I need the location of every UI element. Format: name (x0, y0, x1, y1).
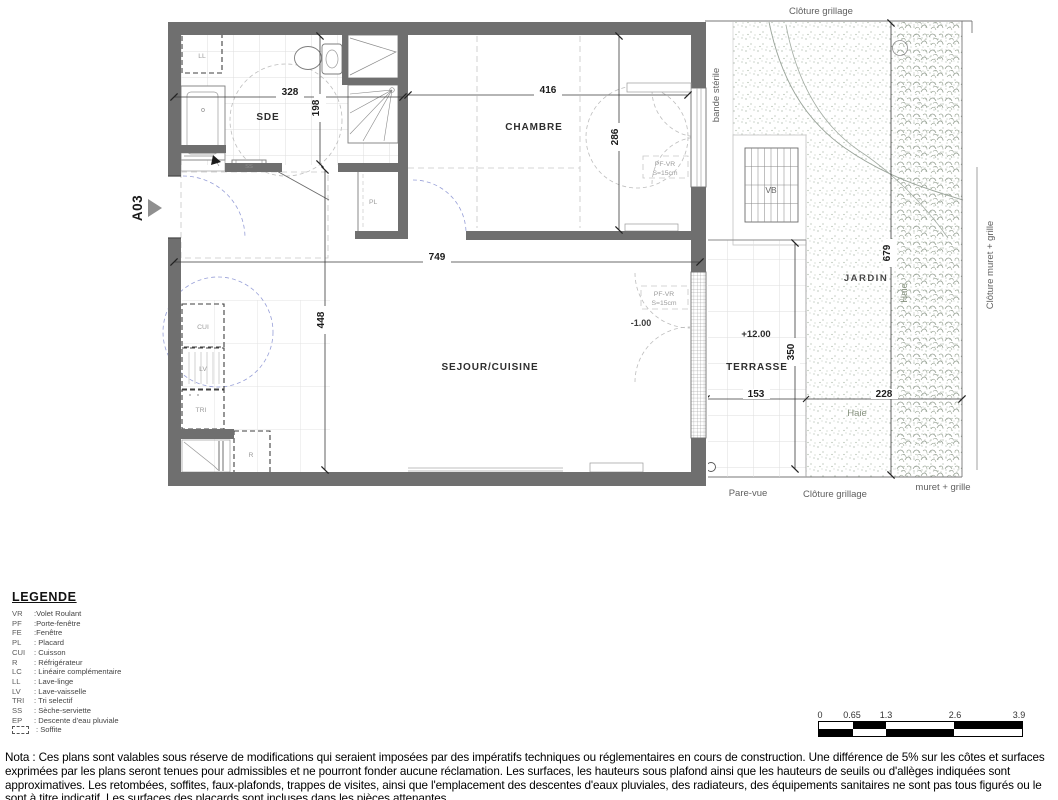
ss-label: SS (245, 164, 253, 170)
legend-item: FE:Fenêtre (12, 628, 121, 638)
soffite-dashed-icon (12, 726, 29, 734)
legend-item: R: Réfrigérateur (12, 658, 121, 668)
room-label-sde: SDE (256, 112, 279, 123)
legend-title: LEGENDE (12, 590, 121, 604)
terrasse-door (691, 272, 706, 438)
cloture-grillage-bottom-label: Clôture grillage (803, 489, 867, 500)
hedge-texture (895, 22, 962, 477)
floor-plan-drawing: VB TERRASSE +12.00 Clôture grillage band… (0, 0, 1058, 592)
legend-item: EP: Descente d'eau pluviale (12, 716, 121, 726)
room-label-terrasse: TERRASSE (726, 362, 788, 373)
legend-item: PL: Placard (12, 638, 121, 648)
cui-label: CUI (197, 324, 209, 331)
muret-grille-label: muret + grille (915, 482, 970, 493)
dim-328: 328 (282, 87, 299, 98)
unit-marker: A03 (130, 195, 162, 221)
svg-text:S=15cm: S=15cm (651, 300, 676, 307)
sejour-level: -1.00 (631, 318, 652, 328)
legend-rows: VR:Volet Roulant PF:Porte-fenêtre FE:Fen… (12, 609, 121, 735)
shower-door (348, 35, 398, 78)
nota-text: Nota : Ces plans sont valables sous rése… (5, 751, 1055, 800)
tri-label: TRI (196, 407, 207, 414)
haie-horizontal-label: Haie (847, 408, 867, 419)
cloture-grillage-top-label: Clôture grillage (789, 6, 853, 17)
vb-label: VB (765, 185, 777, 195)
dim-198: 198 (311, 99, 322, 116)
svg-text:S=15cm: S=15cm (652, 170, 677, 177)
legend-item: LV: Lave-vaisselle (12, 687, 121, 697)
legend-item: LC: Linéaire complémentaire (12, 667, 121, 677)
unit-label: A03 (130, 195, 145, 221)
legend-item: CUI: Cuisson (12, 648, 121, 658)
room-label-jardin: JARDIN (844, 273, 888, 284)
svg-text:PF-VR: PF-VR (655, 161, 675, 168)
bande-sterile-label: bande stérile (711, 68, 722, 122)
garden-area: VB TERRASSE +12.00 Clôture grillage band… (705, 6, 996, 500)
legend-item: VR:Volet Roulant (12, 609, 121, 619)
lv-label: LV (199, 366, 207, 373)
scale-bar: 0 0.65 1.3 2.6 3.9 (818, 710, 1023, 737)
dim-416: 416 (540, 85, 557, 96)
dim-228: 228 (876, 389, 893, 400)
dim-448: 448 (316, 311, 327, 328)
haie-vertical-label: Haie (899, 283, 910, 303)
scale-bar-graphic (818, 721, 1023, 737)
ll-label: LL (198, 53, 206, 60)
vb-grate: VB (733, 135, 806, 245)
dim-286: 286 (610, 128, 621, 145)
legend-item: SS: Sèche-serviette (12, 706, 121, 716)
svg-text:PF-VR: PF-VR (654, 291, 674, 298)
terrace-level: +12.00 (741, 329, 770, 340)
dim-679: 679 (882, 244, 893, 261)
apartment: PL 328 198 416 286 749 448 SDE CHAMBRE S… (163, 22, 708, 486)
legend-item: LL: Lave-linge (12, 677, 121, 687)
legend-item: PF:Porte-fenêtre (12, 619, 121, 629)
r-label: R (249, 452, 254, 459)
scale-bar-labels: 0 0.65 1.3 2.6 3.9 (818, 710, 1023, 721)
legend-item-soffite: : Soffite (12, 725, 121, 735)
roller-shutter-box (627, 83, 691, 92)
toilet (295, 47, 322, 70)
hand-basin (322, 44, 342, 74)
pare-vue-label: Pare-vue (729, 488, 768, 499)
pl-label: PL (369, 199, 378, 206)
dim-153: 153 (748, 389, 765, 400)
cloture-muret-label: Clôture muret + grille (985, 221, 996, 309)
legend-item: TRI: Tri selectif (12, 696, 121, 706)
dim-350: 350 (786, 343, 797, 360)
room-label-sejour: SEJOUR/CUISINE (441, 362, 538, 373)
legend: LEGENDE VR:Volet Roulant PF:Porte-fenêtr… (12, 590, 121, 735)
dim-749: 749 (429, 252, 446, 263)
room-label-chambre: CHAMBRE (505, 122, 562, 133)
entry-arrow-icon (148, 199, 162, 217)
floor-plan-page: VB TERRASSE +12.00 Clôture grillage band… (0, 0, 1058, 800)
